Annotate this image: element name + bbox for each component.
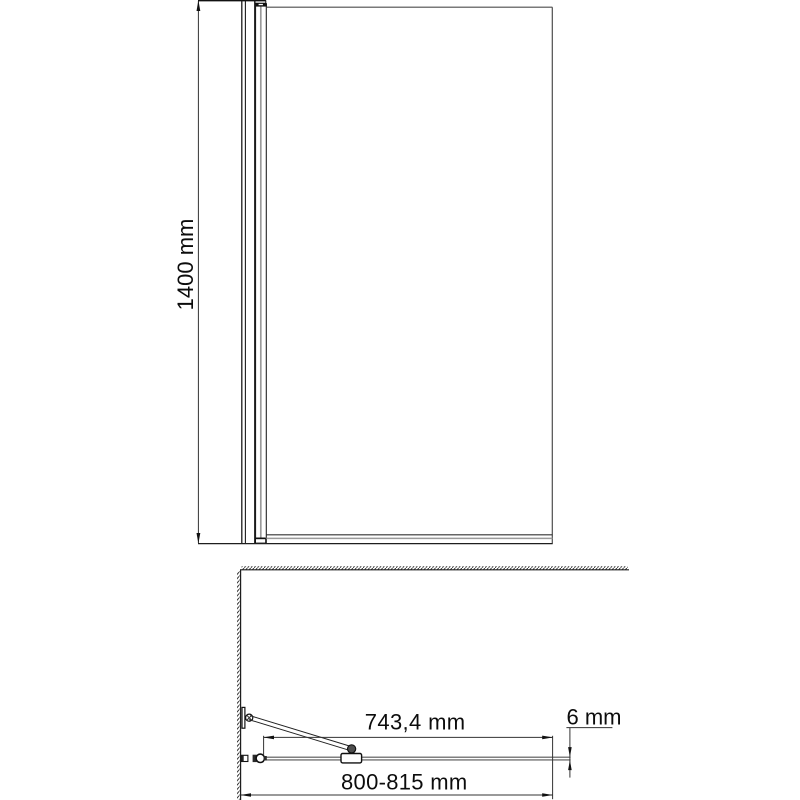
- svg-text:6 mm: 6 mm: [567, 705, 622, 730]
- svg-text:743,4 mm: 743,4 mm: [365, 710, 466, 735]
- svg-text:800-815 mm: 800-815 mm: [341, 770, 468, 795]
- svg-text:1400 mm: 1400 mm: [173, 219, 198, 311]
